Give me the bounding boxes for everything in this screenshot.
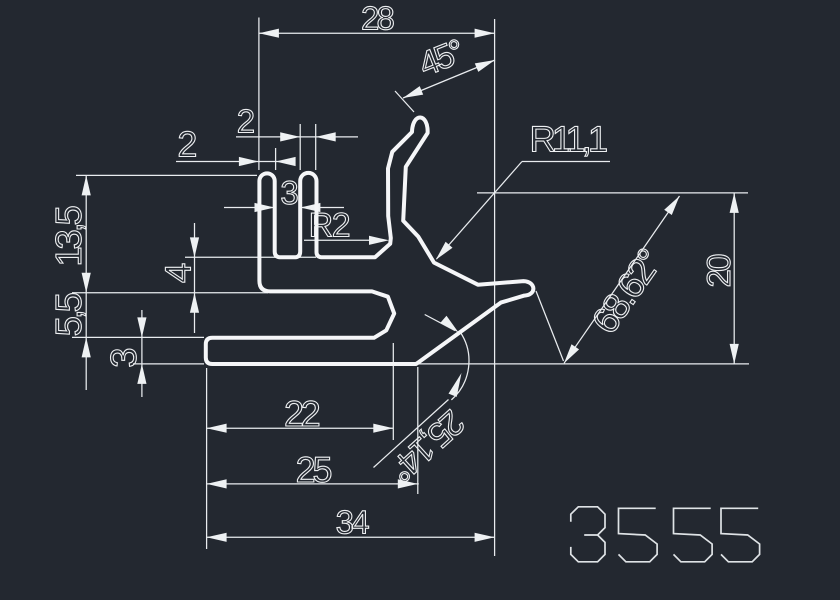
svg-text:20: 20 bbox=[700, 254, 737, 288]
svg-text:13,5: 13,5 bbox=[48, 206, 89, 266]
svg-text:22: 22 bbox=[284, 393, 320, 434]
svg-text:5,5: 5,5 bbox=[48, 293, 89, 336]
svg-text:28: 28 bbox=[361, 0, 394, 37]
svg-text:3: 3 bbox=[103, 349, 144, 368]
svg-text:34: 34 bbox=[336, 504, 370, 541]
svg-text:R2: R2 bbox=[309, 207, 350, 245]
svg-text:2: 2 bbox=[177, 124, 196, 165]
svg-text:R11,1: R11,1 bbox=[529, 119, 606, 160]
svg-text:25: 25 bbox=[296, 449, 332, 490]
svg-text:4: 4 bbox=[157, 263, 198, 283]
svg-text:2: 2 bbox=[237, 103, 254, 140]
svg-text:3: 3 bbox=[280, 174, 297, 211]
